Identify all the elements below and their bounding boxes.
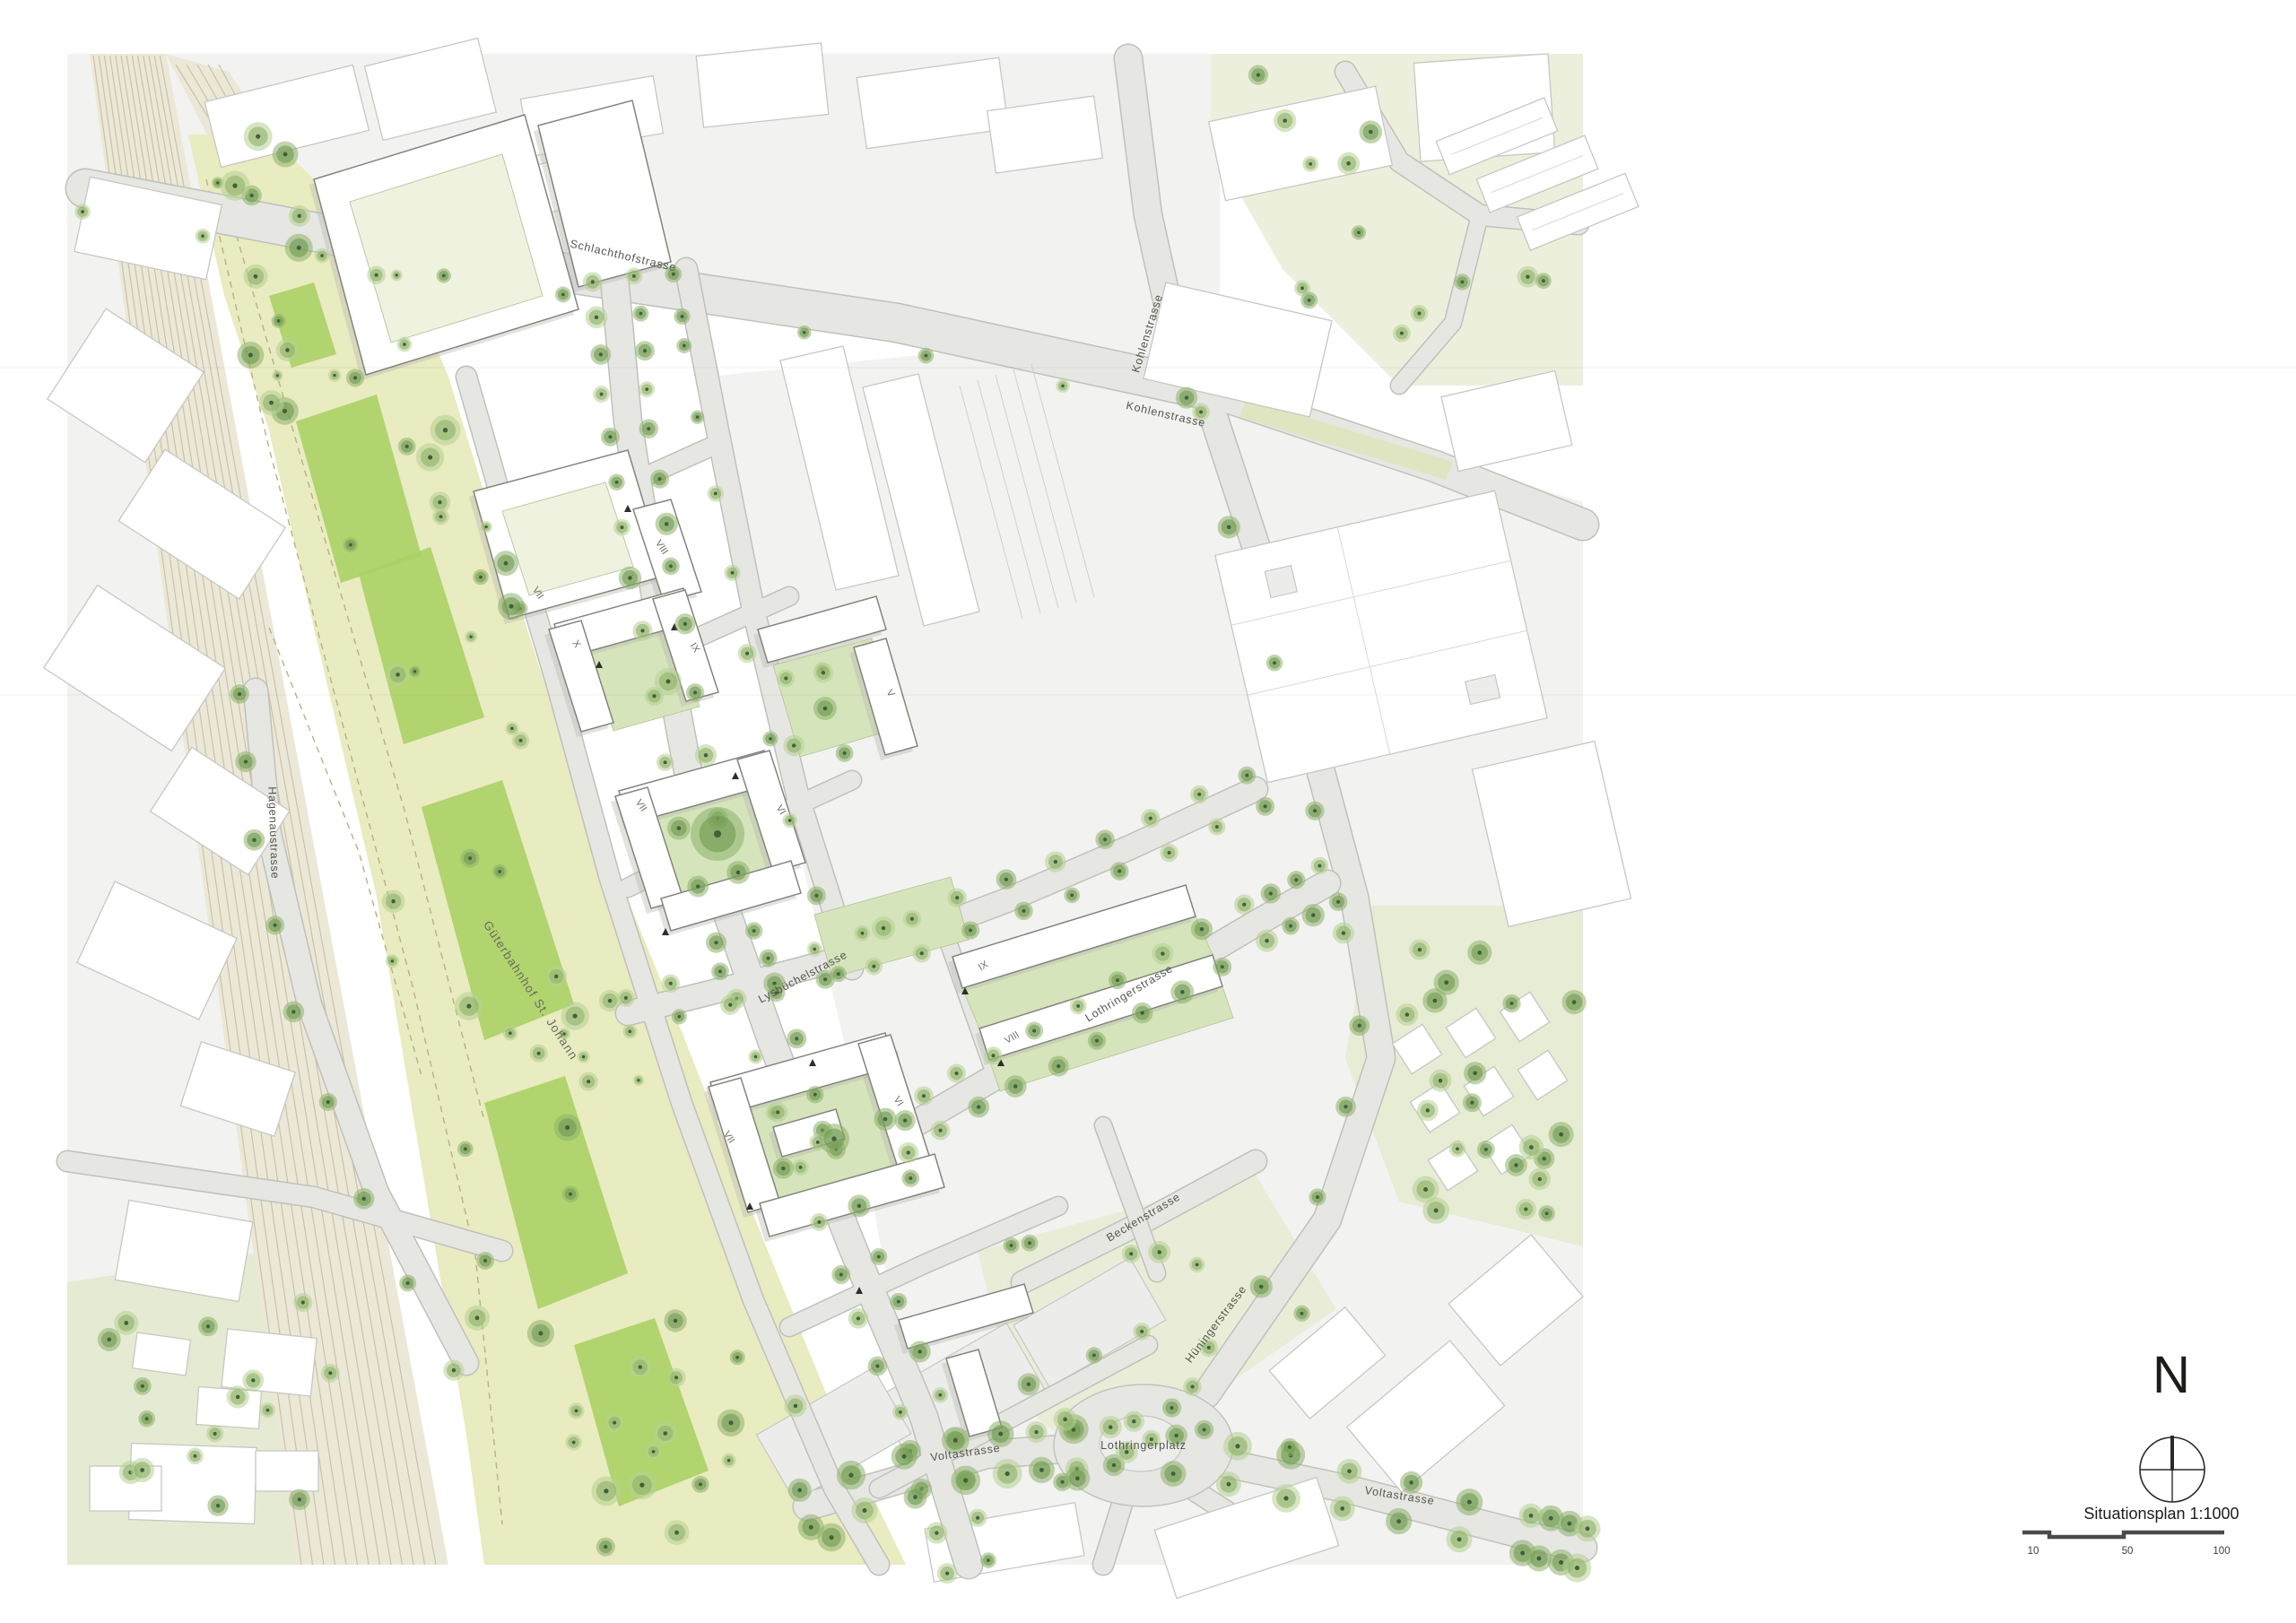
tree-icon — [465, 630, 477, 643]
tree-icon — [630, 1356, 651, 1377]
tree-icon — [1282, 917, 1300, 935]
tree-icon — [1333, 923, 1354, 944]
tree-icon — [285, 234, 313, 262]
tree-icon — [138, 1410, 155, 1428]
tree-icon — [591, 1476, 621, 1506]
tree-icon — [1502, 994, 1520, 1012]
tree-icon — [1287, 871, 1305, 889]
tree-icon — [933, 1387, 948, 1402]
tree-icon — [1422, 988, 1447, 1012]
tree-icon — [1148, 1241, 1170, 1263]
tree-icon — [555, 287, 571, 303]
tree-icon — [397, 337, 413, 352]
tree-icon — [1281, 1438, 1299, 1456]
tree-icon — [1004, 1075, 1027, 1098]
tree-icon — [1176, 386, 1197, 408]
tree-icon — [635, 341, 655, 360]
tree-icon — [870, 1248, 887, 1265]
tree-icon — [831, 966, 847, 982]
tree-icon — [797, 325, 812, 340]
tree-icon — [1422, 1197, 1449, 1224]
tree-icon — [1447, 1526, 1473, 1552]
tree-icon — [993, 1459, 1022, 1488]
tree-icon — [283, 1002, 304, 1023]
tree-icon — [273, 142, 299, 168]
tree-icon — [367, 265, 386, 284]
tree-icon — [622, 1024, 637, 1038]
tree-icon — [865, 958, 883, 975]
tree-icon — [1337, 152, 1360, 175]
tree-icon — [639, 381, 655, 397]
tree-icon — [726, 861, 750, 884]
tree-icon — [321, 1364, 340, 1383]
tree-icon — [783, 735, 804, 757]
tree-icon — [315, 248, 329, 263]
tree-icon — [344, 537, 359, 552]
tree-icon — [1086, 1347, 1102, 1363]
tree-icon — [676, 338, 691, 353]
tree-icon — [493, 551, 518, 576]
tree-icon — [1417, 1099, 1439, 1121]
tree-icon — [672, 1009, 687, 1024]
north-label: N — [2152, 1346, 2190, 1404]
tree-icon — [1335, 1097, 1356, 1117]
tree-icon — [613, 519, 631, 536]
tree-icon — [276, 339, 299, 361]
tree-icon — [289, 205, 310, 227]
tree-icon — [1549, 1122, 1574, 1147]
tree-icon — [848, 1194, 870, 1217]
tree-icon — [243, 265, 267, 289]
tree-icon — [855, 925, 871, 942]
tree-icon — [980, 1552, 996, 1568]
tree-icon — [894, 1110, 915, 1131]
tree-icon — [114, 1311, 138, 1335]
tree-icon — [898, 1142, 918, 1163]
tree-icon — [918, 348, 935, 364]
tree-icon — [792, 1159, 808, 1176]
tree-icon — [1141, 809, 1160, 828]
tree-icon — [695, 744, 717, 766]
tree-icon — [272, 314, 286, 328]
tree-icon — [530, 1045, 548, 1063]
tree-icon — [1309, 1189, 1326, 1206]
tree-icon — [473, 569, 489, 586]
tree-icon — [665, 1520, 690, 1545]
tree-icon — [1122, 1245, 1141, 1263]
tree-icon — [1152, 943, 1173, 965]
tree-icon — [605, 1414, 623, 1432]
tree-icon — [1311, 857, 1328, 874]
scale-bar-line — [2022, 1532, 2224, 1537]
tree-icon — [346, 369, 364, 386]
tree-icon — [872, 916, 895, 940]
tree-icon — [722, 1454, 736, 1468]
compass-icon — [2140, 1436, 2205, 1502]
tree-icon — [265, 916, 284, 934]
tree-icon — [788, 1479, 812, 1502]
tree-icon — [272, 370, 283, 381]
tree-icon — [1409, 940, 1430, 960]
tree-icon — [1216, 1471, 1241, 1497]
tree-icon — [1195, 1420, 1213, 1439]
tree-icon — [230, 684, 249, 704]
tree-icon — [512, 732, 530, 750]
tree-icon — [1272, 1484, 1300, 1513]
site-plan-page: VII VIII I X IX VII VI IX VIII VII VI V … — [0, 0, 2296, 1623]
tree-icon — [909, 1341, 931, 1362]
tree-icon — [1248, 65, 1268, 85]
tree-icon — [1526, 1545, 1552, 1571]
tree-icon — [912, 944, 931, 963]
tree-icon — [1026, 1421, 1048, 1443]
tree-icon — [503, 1026, 517, 1040]
street-label: Lothringerplatz — [1100, 1439, 1187, 1452]
tree-icon — [461, 849, 480, 868]
tree-icon — [969, 1508, 987, 1526]
tree-icon — [691, 411, 704, 424]
tree-icon — [206, 1425, 223, 1442]
tree-icon — [1505, 1154, 1527, 1176]
tree-icon — [903, 910, 921, 928]
tree-icon — [293, 1293, 312, 1312]
tree-icon — [1538, 1205, 1554, 1221]
tree-icon — [492, 864, 507, 879]
tree-icon — [608, 474, 624, 490]
tree-icon — [1261, 883, 1281, 903]
tree-icon — [810, 1213, 828, 1231]
tree-icon — [661, 975, 680, 994]
tree-icon — [1014, 902, 1032, 920]
tree-icon — [951, 1466, 980, 1496]
tree-icon — [773, 1158, 794, 1178]
tree-icon — [1329, 892, 1348, 911]
tree-icon — [599, 990, 621, 1011]
tree-icon — [134, 1377, 152, 1395]
tree-icon — [947, 1064, 966, 1083]
tree-icon — [1208, 818, 1225, 835]
tree-icon — [220, 170, 249, 200]
tree-icon — [1045, 851, 1065, 872]
tree-icon — [787, 1028, 806, 1048]
tree-icon — [1095, 829, 1114, 848]
tree-icon — [759, 949, 777, 967]
tree-icon — [1065, 1466, 1090, 1491]
tree-icon — [937, 1563, 958, 1584]
tree-icon — [386, 954, 399, 968]
tree-icon — [476, 1252, 494, 1270]
tree-icon — [546, 966, 567, 986]
tree-icon — [1213, 958, 1231, 976]
tree-icon — [891, 1444, 918, 1470]
tree-icon — [1274, 109, 1296, 132]
tree-icon — [819, 1124, 849, 1154]
tree-icon — [1575, 1515, 1601, 1541]
tree-icon — [1562, 990, 1587, 1014]
tree-icon — [1190, 785, 1208, 803]
tree-icon — [593, 386, 610, 403]
tree-icon — [1110, 862, 1129, 881]
tree-icon — [579, 1072, 598, 1091]
tree-icon — [1004, 1237, 1020, 1254]
tree-icon — [745, 922, 762, 939]
tree-icon — [628, 1471, 657, 1499]
tree-icon — [639, 419, 658, 438]
tree-icon — [1124, 1411, 1144, 1432]
tree-icon — [1048, 1055, 1069, 1076]
tree-icon — [465, 1306, 490, 1331]
tree-icon — [1018, 1373, 1040, 1395]
tree-icon — [1516, 1199, 1536, 1219]
tree-icon — [1529, 1168, 1551, 1190]
tree-icon — [837, 1461, 865, 1489]
tree-icon — [984, 1046, 1002, 1064]
tree-icon — [1250, 1275, 1273, 1298]
tree-icon — [762, 731, 778, 746]
tree-icon — [1022, 1235, 1039, 1252]
tree-icon — [650, 470, 669, 489]
tree-icon — [1305, 802, 1324, 820]
tree-icon — [1025, 1021, 1043, 1039]
tree-icon — [730, 1350, 745, 1365]
tree-icon — [813, 697, 837, 720]
tree-icon — [74, 204, 91, 220]
tree-icon — [632, 306, 648, 322]
tree-icon — [782, 813, 797, 829]
tree-icon — [1463, 1093, 1482, 1112]
tree-icon — [1189, 1257, 1205, 1272]
tree-icon — [596, 1538, 615, 1557]
tree-icon — [260, 1402, 275, 1418]
tree-icon — [633, 1075, 644, 1086]
tree-icon — [708, 485, 724, 501]
tree-icon — [890, 1293, 907, 1310]
tree-icon — [768, 1102, 787, 1122]
tree-icon — [1330, 1496, 1355, 1521]
tree-icon — [662, 558, 680, 576]
tree-icon — [1302, 156, 1318, 172]
tree-icon — [807, 886, 826, 905]
tree-icon — [562, 1185, 579, 1202]
tree-icon — [926, 1522, 947, 1543]
tree-icon — [1393, 325, 1411, 343]
tree-icon — [1234, 894, 1254, 914]
tree-icon — [601, 428, 620, 447]
tree-icon — [1359, 120, 1382, 143]
tree-icon — [848, 1308, 869, 1329]
tree-icon — [1064, 888, 1080, 904]
tree-icon — [1133, 1323, 1150, 1340]
tree-icon — [568, 1402, 584, 1419]
tree-icon — [227, 1385, 249, 1408]
tree-icon — [996, 869, 1017, 890]
tree-icon — [657, 754, 674, 771]
tree-icon — [1411, 305, 1428, 322]
scale-tick: 100 — [2213, 1546, 2230, 1557]
tree-icon — [1467, 941, 1492, 965]
tree-icon — [196, 229, 211, 244]
tree-icon — [632, 621, 652, 640]
site-plan-map: VII VIII I X IX VII VI IX VIII VII VI V … — [0, 0, 2296, 1623]
tree-icon — [784, 1394, 806, 1417]
tree-icon — [242, 1369, 264, 1391]
tree-icon — [931, 1121, 951, 1141]
tree-icon — [1456, 1488, 1483, 1515]
tree-icon — [391, 269, 403, 281]
tree-icon — [1132, 1002, 1153, 1024]
tree-icon — [1302, 904, 1325, 926]
tree-icon — [706, 933, 726, 953]
tree-icon — [724, 565, 740, 581]
tree-icon — [1109, 971, 1126, 989]
tree-icon — [664, 1309, 686, 1332]
legend: N Situationsplan 1:1000 10 50 100 — [2022, 1346, 2239, 1557]
tree-icon — [409, 666, 420, 677]
tree-icon — [387, 663, 410, 686]
tree-icon — [319, 1093, 337, 1111]
scale-tick: 10 — [2028, 1546, 2039, 1557]
tree-icon — [748, 1049, 762, 1063]
tree-icon — [711, 962, 729, 980]
tree-icon — [198, 1316, 218, 1336]
tree-icon — [235, 751, 256, 772]
tree-icon — [328, 369, 341, 381]
tree-icon — [244, 829, 265, 851]
tree-icon — [667, 817, 691, 840]
tree-icon — [1170, 980, 1194, 1003]
tree-icon — [1161, 1461, 1187, 1487]
tree-icon — [1349, 1015, 1370, 1036]
tree-icon — [674, 613, 695, 634]
tree-icon — [1191, 918, 1213, 940]
tree-icon — [398, 438, 416, 456]
tree-icon — [831, 1265, 850, 1284]
tree-icon — [1563, 1554, 1592, 1583]
tree-icon — [527, 1320, 554, 1347]
tree-icon — [1088, 1032, 1106, 1050]
tree-icon — [590, 344, 611, 365]
tree-icon — [903, 1486, 926, 1509]
tree-icon — [1256, 797, 1274, 816]
scale-tick: 50 — [2122, 1546, 2134, 1557]
tree-icon — [237, 342, 264, 369]
tree-icon — [1464, 1062, 1486, 1084]
tree-icon — [851, 1497, 877, 1523]
tree-icon — [874, 1107, 896, 1130]
tree-icon — [554, 1114, 581, 1141]
tree-icon — [892, 1404, 909, 1420]
tree-icon — [1386, 1508, 1412, 1534]
tree-icon — [738, 644, 757, 663]
tree-icon — [720, 994, 740, 1014]
tree-icon — [498, 593, 525, 620]
tree-icon — [813, 663, 833, 682]
tree-icon — [1160, 844, 1178, 862]
tree-icon — [968, 1097, 989, 1118]
tree-icon — [655, 668, 682, 695]
tree-icon — [1519, 1135, 1544, 1159]
tree-icon — [130, 1458, 154, 1482]
tree-icon — [778, 670, 796, 688]
tree-icon — [1517, 266, 1538, 288]
tree-icon — [1238, 767, 1256, 785]
tree-icon — [654, 1422, 676, 1445]
tree-icon — [1256, 930, 1278, 952]
tree-icon — [1054, 1408, 1077, 1431]
tree-icon — [1218, 516, 1240, 538]
tree-icon — [1223, 1432, 1252, 1461]
tree-icon — [691, 807, 744, 861]
tree-icon — [687, 876, 709, 898]
tree-icon — [457, 1141, 474, 1157]
tree-icon — [717, 1410, 744, 1436]
tree-icon — [1454, 273, 1470, 290]
tree-icon — [98, 1328, 121, 1351]
tree-icon — [1300, 291, 1318, 308]
tree-icon — [619, 567, 641, 589]
tree-icon — [443, 1360, 464, 1381]
tree-icon — [432, 508, 448, 525]
tree-icon — [382, 890, 405, 913]
tree-icon — [1162, 1398, 1181, 1417]
tree-icon — [480, 521, 491, 533]
tree-icon — [1337, 1459, 1362, 1484]
tree-icon — [561, 1002, 588, 1029]
tree-icon — [1430, 1070, 1452, 1092]
tree-icon — [807, 942, 822, 957]
tree-icon — [1396, 1003, 1419, 1026]
tree-icon — [586, 306, 608, 328]
tree-icon — [806, 1086, 823, 1103]
tree-icon — [1056, 379, 1069, 393]
tree-icon — [244, 122, 273, 151]
tree-icon — [416, 443, 444, 471]
tree-icon — [1100, 1416, 1122, 1438]
tree-icon — [1535, 273, 1552, 289]
tree-icon — [455, 992, 483, 1020]
tree-icon — [691, 1476, 709, 1493]
tree-icon — [1029, 1457, 1055, 1483]
tree-icon — [437, 268, 451, 282]
tree-icon — [207, 1495, 228, 1515]
tree-icon — [868, 1357, 888, 1376]
tree-icon — [948, 888, 967, 907]
tree-icon — [1477, 1141, 1495, 1159]
tree-icon — [1449, 1141, 1465, 1157]
tree-icon — [353, 1188, 375, 1210]
tree-icon — [399, 1275, 416, 1292]
tree-icon — [1266, 655, 1283, 671]
tree-icon — [187, 1448, 204, 1465]
tree-icon — [1183, 1377, 1202, 1396]
tree-icon — [259, 390, 284, 415]
tree-icon — [817, 1523, 846, 1552]
tree-icon — [565, 1434, 581, 1450]
tree-icon — [674, 308, 690, 325]
plan-caption: Situationsplan 1:1000 — [2083, 1505, 2239, 1523]
tree-icon — [686, 683, 704, 701]
tree-icon — [289, 1488, 310, 1510]
tree-icon — [901, 1169, 919, 1187]
tree-icon — [1352, 225, 1366, 239]
tree-icon — [656, 513, 678, 535]
tree-icon — [646, 1444, 662, 1460]
tree-icon — [583, 272, 603, 291]
tree-icon — [430, 415, 461, 446]
tree-icon — [626, 268, 643, 285]
scale-bar: 10 50 100 — [2022, 1532, 2231, 1557]
tree-icon — [961, 921, 979, 939]
